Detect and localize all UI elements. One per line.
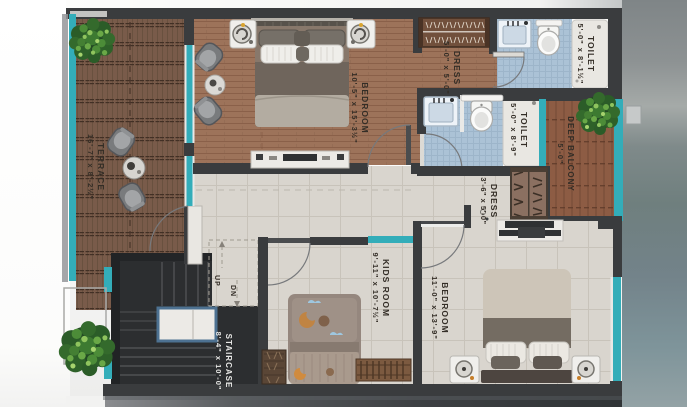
svg-text:10'-5" x 15'-3½": 10'-5" x 15'-3½" [350, 72, 359, 143]
svg-text:UP: UP [213, 275, 220, 287]
svg-text:9'-11" x 10'-7½": 9'-11" x 10'-7½" [371, 253, 380, 324]
svg-text:8'-4" x 10'-0": 8'-4" x 10'-0" [214, 332, 223, 391]
svg-text:DRESS: DRESS [489, 184, 499, 218]
svg-text:5'-0" x 5'-0": 5'-0" x 5'-0" [442, 41, 451, 95]
svg-text:TERRACE: TERRACE [96, 143, 106, 191]
svg-text:DN: DN [229, 285, 236, 297]
svg-text:3'-6" x 5'-0": 3'-6" x 5'-0" [479, 177, 488, 224]
svg-text:STAIRCASE: STAIRCASE [224, 334, 233, 389]
svg-text:TOILET: TOILET [586, 36, 596, 72]
svg-text:11'-0" x 13'-9": 11'-0" x 13'-9" [430, 276, 439, 340]
svg-text:BEDROOM: BEDROOM [360, 82, 370, 133]
svg-text:TOILET: TOILET [519, 112, 529, 148]
svg-text:16'-7" x 8'-2½": 16'-7" x 8'-2½" [86, 134, 95, 200]
svg-text:5'-0": 5'-0" [556, 143, 565, 164]
svg-text:5'-0" x 8'-9": 5'-0" x 8'-9" [509, 103, 518, 157]
svg-text:KIDS ROOM: KIDS ROOM [381, 259, 391, 317]
svg-text:DRESS: DRESS [452, 51, 462, 85]
svg-text:BEDROOM: BEDROOM [440, 282, 450, 333]
svg-text:5'-0" x 8'-1½": 5'-0" x 8'-1½" [576, 24, 585, 85]
svg-text:DEEP BALCONY: DEEP BALCONY [566, 116, 575, 191]
